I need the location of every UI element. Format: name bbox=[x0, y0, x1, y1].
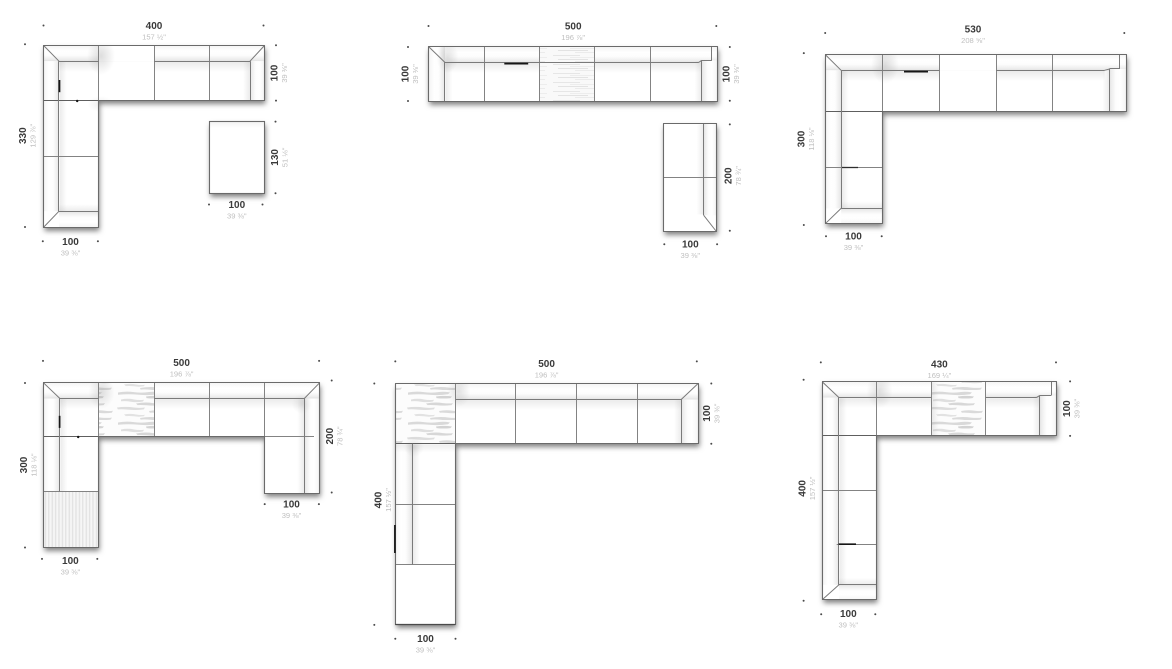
svg-text:39 ⅜": 39 ⅜" bbox=[61, 249, 81, 258]
svg-text:39 ⅜": 39 ⅜" bbox=[732, 64, 741, 84]
svg-text:39 ⅜": 39 ⅜" bbox=[411, 64, 420, 84]
svg-text:78 ¾": 78 ¾" bbox=[336, 426, 345, 446]
svg-text:200: 200 bbox=[325, 427, 336, 444]
svg-text:300: 300 bbox=[19, 456, 30, 473]
svg-text:39 ⅜": 39 ⅜" bbox=[282, 511, 302, 520]
svg-text:157 ½": 157 ½" bbox=[384, 488, 393, 512]
svg-text:300: 300 bbox=[797, 130, 808, 147]
svg-text:100: 100 bbox=[417, 634, 434, 645]
svg-text:100: 100 bbox=[682, 240, 699, 251]
svg-text:400: 400 bbox=[374, 491, 385, 508]
svg-text:100: 100 bbox=[62, 237, 79, 248]
svg-text:129 ⅞": 129 ⅞" bbox=[29, 123, 38, 147]
svg-text:196 ⅞": 196 ⅞" bbox=[561, 33, 585, 42]
svg-text:100: 100 bbox=[702, 405, 713, 422]
svg-text:208 ⅝": 208 ⅝" bbox=[961, 36, 985, 45]
svg-text:39 ⅜": 39 ⅜" bbox=[280, 63, 289, 83]
svg-text:39 ⅜": 39 ⅜" bbox=[61, 568, 81, 577]
svg-text:400: 400 bbox=[797, 480, 808, 497]
svg-text:130: 130 bbox=[270, 149, 281, 166]
svg-text:100: 100 bbox=[228, 200, 245, 211]
svg-text:200: 200 bbox=[724, 167, 735, 184]
svg-text:100: 100 bbox=[283, 500, 300, 511]
svg-text:100: 100 bbox=[62, 556, 79, 567]
svg-text:196 ⅞": 196 ⅞" bbox=[535, 371, 559, 380]
svg-text:157 ½": 157 ½" bbox=[808, 476, 817, 500]
svg-text:39 ⅜": 39 ⅜" bbox=[844, 243, 864, 252]
svg-text:430: 430 bbox=[931, 360, 948, 371]
svg-text:39 ⅜": 39 ⅜" bbox=[839, 621, 859, 630]
svg-text:39 ⅜": 39 ⅜" bbox=[416, 646, 436, 655]
svg-text:100: 100 bbox=[840, 609, 857, 620]
svg-text:39 ⅜": 39 ⅜" bbox=[1073, 399, 1082, 419]
svg-text:118 ⅛": 118 ⅛" bbox=[807, 127, 816, 151]
svg-text:100: 100 bbox=[270, 64, 281, 81]
svg-text:100: 100 bbox=[401, 65, 412, 82]
svg-text:39 ⅜": 39 ⅜" bbox=[713, 403, 722, 423]
svg-text:500: 500 bbox=[538, 359, 555, 370]
svg-text:51 ⅛": 51 ⅛" bbox=[281, 147, 290, 167]
svg-text:500: 500 bbox=[565, 22, 582, 33]
svg-text:39 ⅜": 39 ⅜" bbox=[681, 251, 701, 260]
svg-text:530: 530 bbox=[965, 25, 982, 36]
svg-text:157 ½": 157 ½" bbox=[142, 33, 166, 42]
svg-text:39 ⅜": 39 ⅜" bbox=[227, 212, 247, 221]
svg-text:196 ⅞": 196 ⅞" bbox=[170, 370, 194, 379]
svg-text:169 ¼": 169 ¼" bbox=[927, 371, 951, 380]
svg-text:118 ⅛": 118 ⅛" bbox=[30, 453, 39, 477]
svg-text:100: 100 bbox=[845, 232, 862, 243]
svg-text:78 ¾": 78 ¾" bbox=[734, 166, 743, 186]
svg-text:100: 100 bbox=[722, 65, 733, 82]
svg-text:400: 400 bbox=[146, 21, 163, 32]
svg-text:330: 330 bbox=[18, 127, 29, 144]
svg-text:100: 100 bbox=[1062, 400, 1073, 417]
svg-text:500: 500 bbox=[173, 358, 190, 369]
